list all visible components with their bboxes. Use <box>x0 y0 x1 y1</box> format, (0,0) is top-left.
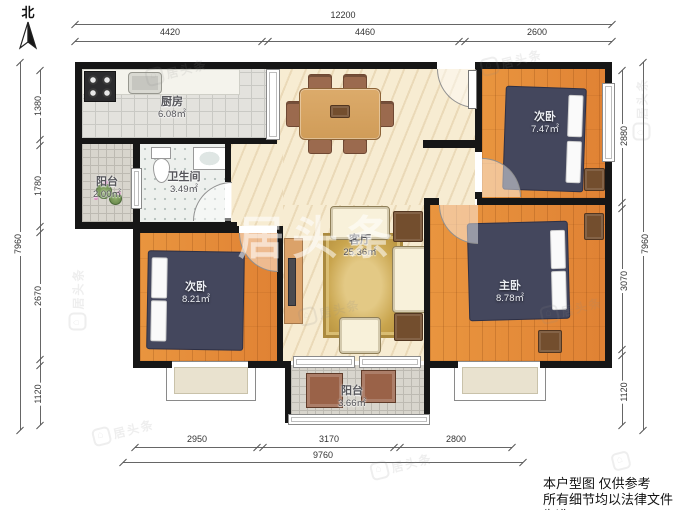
bedroom-ne-window <box>602 83 615 162</box>
pillow <box>551 271 567 310</box>
side-table <box>393 211 423 242</box>
bed <box>467 221 571 322</box>
dimension-label: 2800 <box>444 434 468 444</box>
footer-disclaimer: 本户型图 仅供参考 所有细节均以法律文件为准 <box>543 476 680 510</box>
wall <box>75 62 437 69</box>
watermark-text: 居头条 <box>633 77 650 119</box>
dimension-label: 9760 <box>311 450 335 460</box>
watermark: ⌂ 居头条 <box>633 77 651 140</box>
flower <box>117 191 121 195</box>
dimension-label: 2670 <box>33 284 43 308</box>
kitchen-sliding-door <box>266 69 280 140</box>
entry-door-leaf <box>468 70 477 109</box>
dimension-line <box>75 41 612 42</box>
disclaimer-line-1: 本户型图 仅供参考 <box>543 476 680 492</box>
compass-icon <box>14 21 42 51</box>
north-label: 北 <box>13 2 43 21</box>
watermark-text: 居头条 <box>111 415 156 442</box>
dimension-label: 2600 <box>525 27 549 37</box>
nightstand <box>538 330 562 353</box>
dimension-label: 1120 <box>33 382 43 405</box>
wall <box>605 62 612 85</box>
wall <box>475 62 612 69</box>
brand-logo-icon: ⌂ <box>69 313 87 331</box>
watermark: ⌂ 居头条 <box>91 415 156 448</box>
watermark-text: 居头条 <box>69 267 86 309</box>
dimension-label: 2880 <box>619 124 629 148</box>
pillow <box>565 141 581 183</box>
brand-logo-icon: ⌂ <box>91 426 113 448</box>
balcony-window <box>293 356 355 368</box>
bathroom-sink <box>193 147 226 170</box>
dimension-label: 12200 <box>328 10 357 20</box>
dimension-line <box>75 24 612 25</box>
wall <box>225 144 231 182</box>
bathroom-window <box>131 168 142 209</box>
dimension-label: 4420 <box>158 27 182 37</box>
dimension-label: 3170 <box>317 434 341 444</box>
wall <box>133 226 140 368</box>
pillow <box>550 230 566 269</box>
watermark: ⌂ 居头条 <box>369 449 434 482</box>
hallway-floor <box>231 144 283 226</box>
wall <box>477 198 612 205</box>
wall <box>75 62 82 229</box>
wall <box>82 138 277 144</box>
pillow <box>150 300 167 341</box>
dimension-line <box>135 447 512 448</box>
armchair <box>339 317 381 354</box>
watermark: ⌂ 居头条 <box>69 267 87 330</box>
wall <box>133 361 172 368</box>
dimension-label: 7960 <box>640 232 650 256</box>
brand-logo-icon: ⌂ <box>633 123 651 141</box>
bed <box>146 250 245 351</box>
dimension-label: 2950 <box>185 434 209 444</box>
balcony-planter <box>361 370 396 403</box>
north-arrow: 北 <box>13 2 43 56</box>
wall <box>605 158 612 368</box>
nightstand <box>584 168 605 191</box>
brand-logo-icon: ⌂ <box>610 450 632 472</box>
wall <box>133 144 140 170</box>
flower <box>94 196 98 200</box>
balcony-window <box>359 356 421 368</box>
wall <box>424 198 430 361</box>
flower <box>103 180 108 185</box>
dimension-label: 1380 <box>33 94 43 118</box>
dimension-label: 7960 <box>13 232 23 256</box>
dimension-label: 1780 <box>33 174 43 198</box>
stove <box>84 71 116 102</box>
balcony-window <box>288 414 430 425</box>
dimension-line <box>123 462 523 463</box>
table-centerpiece <box>330 105 350 118</box>
pillow <box>151 257 168 298</box>
sofa <box>330 206 390 240</box>
wall <box>423 140 478 148</box>
kitchen-sink <box>128 72 162 94</box>
bay-window-sill <box>174 367 248 394</box>
disclaimer-line-2: 所有细节均以法律文件为准 <box>543 492 680 510</box>
dimension-label: 4460 <box>353 27 377 37</box>
side-table <box>394 313 423 341</box>
dimension-line <box>40 70 41 425</box>
watermark: ⌂ <box>610 450 632 472</box>
nightstand <box>584 213 604 240</box>
wall <box>133 226 239 233</box>
pillow <box>567 95 583 137</box>
floor-plan-canvas: 厨房 6.08㎡ 阳台 2.00㎡ 卫生间 3.49㎡ 客厅 25.36㎡ 次卧… <box>0 0 680 510</box>
tv <box>288 258 296 306</box>
bay-window-sill <box>462 367 538 394</box>
dimension-label: 1120 <box>619 380 629 403</box>
dimension-label: 3070 <box>619 269 629 293</box>
balcony-planter <box>306 373 343 408</box>
wall <box>540 361 612 368</box>
